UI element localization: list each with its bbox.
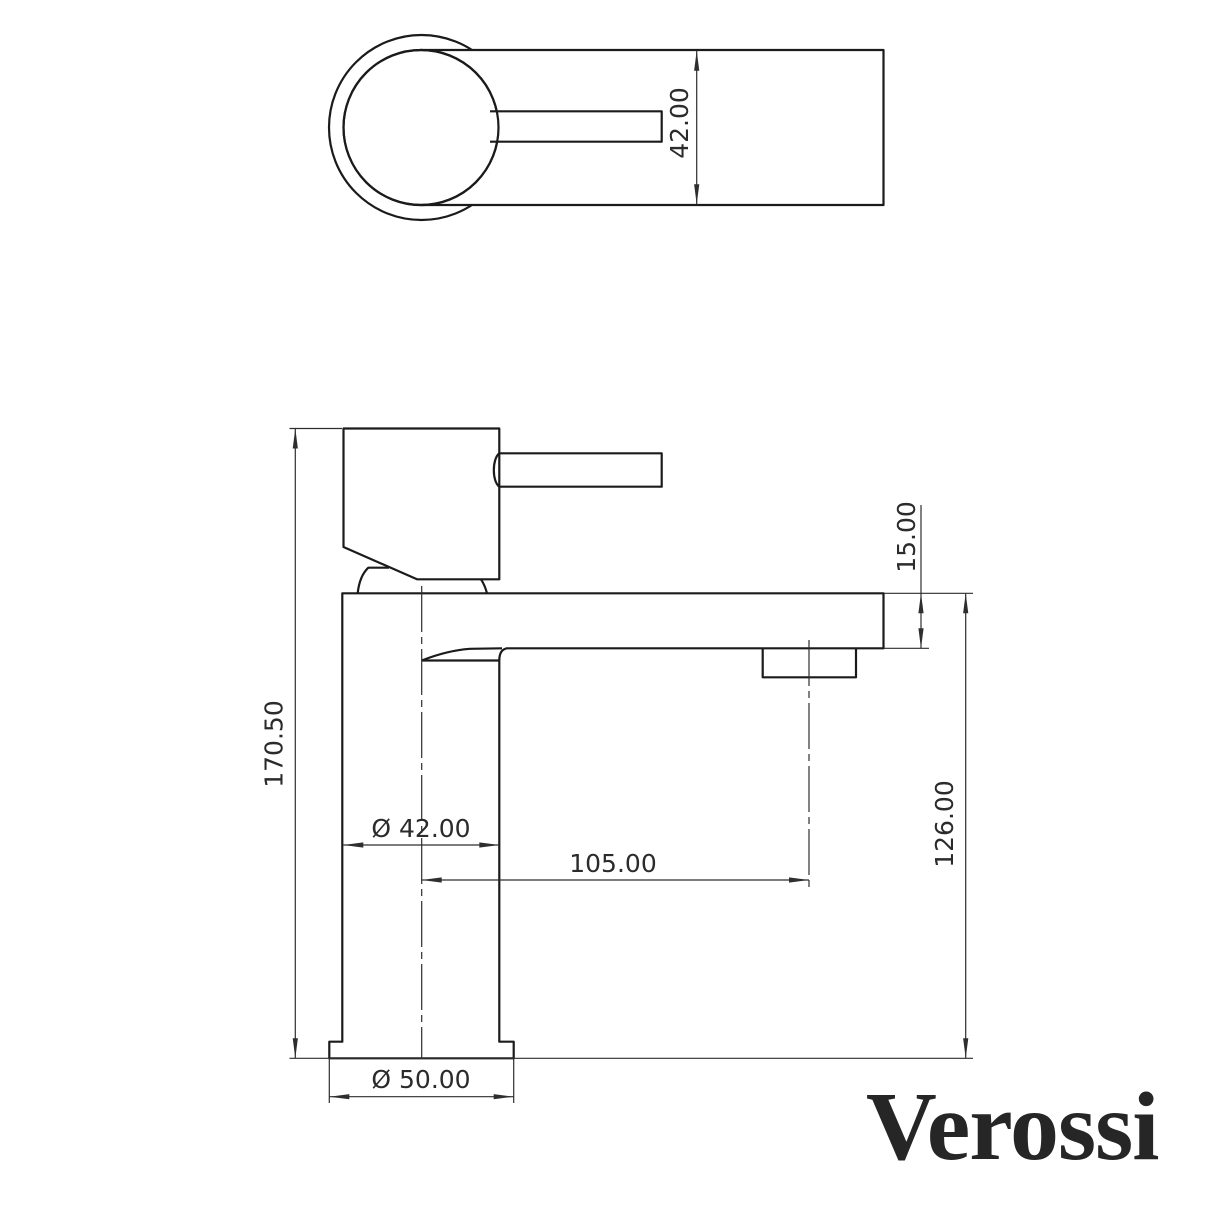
dim-spout-thickness: 15.00 <box>885 501 974 648</box>
dim-top-body-width-label: 42.00 <box>665 87 694 159</box>
front-view-neck-right-arc <box>481 579 487 593</box>
front-view-handle-body <box>344 429 500 580</box>
dim-spout-thickness-label: 15.00 <box>892 501 921 573</box>
drawing-sheet: 42.00 <box>0 0 1214 1214</box>
brand-logo: Verossi <box>866 1078 1196 1176</box>
dim-base-diameter-label: Ø 50.00 <box>371 1065 470 1094</box>
technical-drawing-canvas: 42.00 <box>0 0 1214 1214</box>
front-view <box>329 429 883 1059</box>
top-view-lever <box>490 111 662 141</box>
dim-spout-outlet-height: 126.00 <box>930 593 966 1058</box>
top-view: 42.00 <box>329 35 884 220</box>
dim-body-diameter-label: Ø 42.00 <box>371 814 470 843</box>
dim-spout-outlet-height-label: 126.00 <box>930 780 959 867</box>
dim-overall-height-label: 170.50 <box>260 700 289 787</box>
dim-base-diameter: Ø 50.00 <box>329 1059 513 1103</box>
front-view-lever <box>499 453 661 486</box>
front-view-neck-left-arc <box>358 568 389 594</box>
dim-spout-reach-label: 105.00 <box>569 849 656 878</box>
